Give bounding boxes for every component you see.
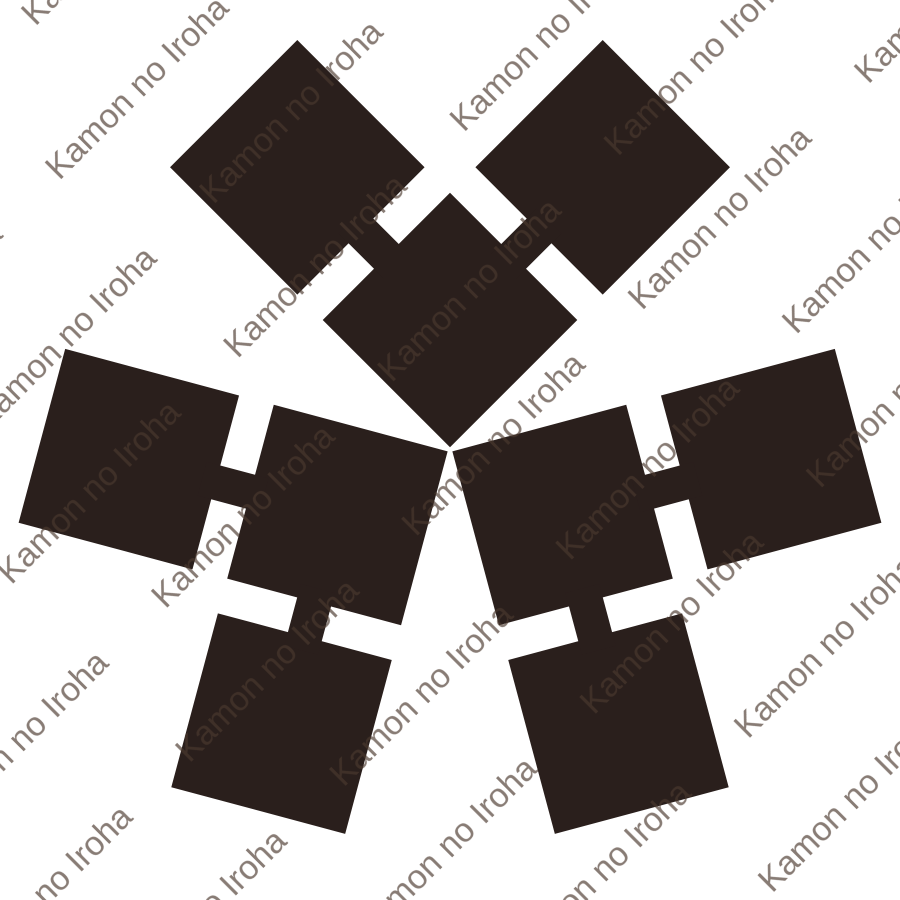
kamon-crest-canvas: Kamon no IrohaKamon no IrohaKamon no Iro… — [0, 0, 900, 900]
watermark-overlay — [0, 0, 900, 900]
kamon-watermarked-image: Kamon no IrohaKamon no IrohaKamon no Iro… — [0, 0, 900, 900]
